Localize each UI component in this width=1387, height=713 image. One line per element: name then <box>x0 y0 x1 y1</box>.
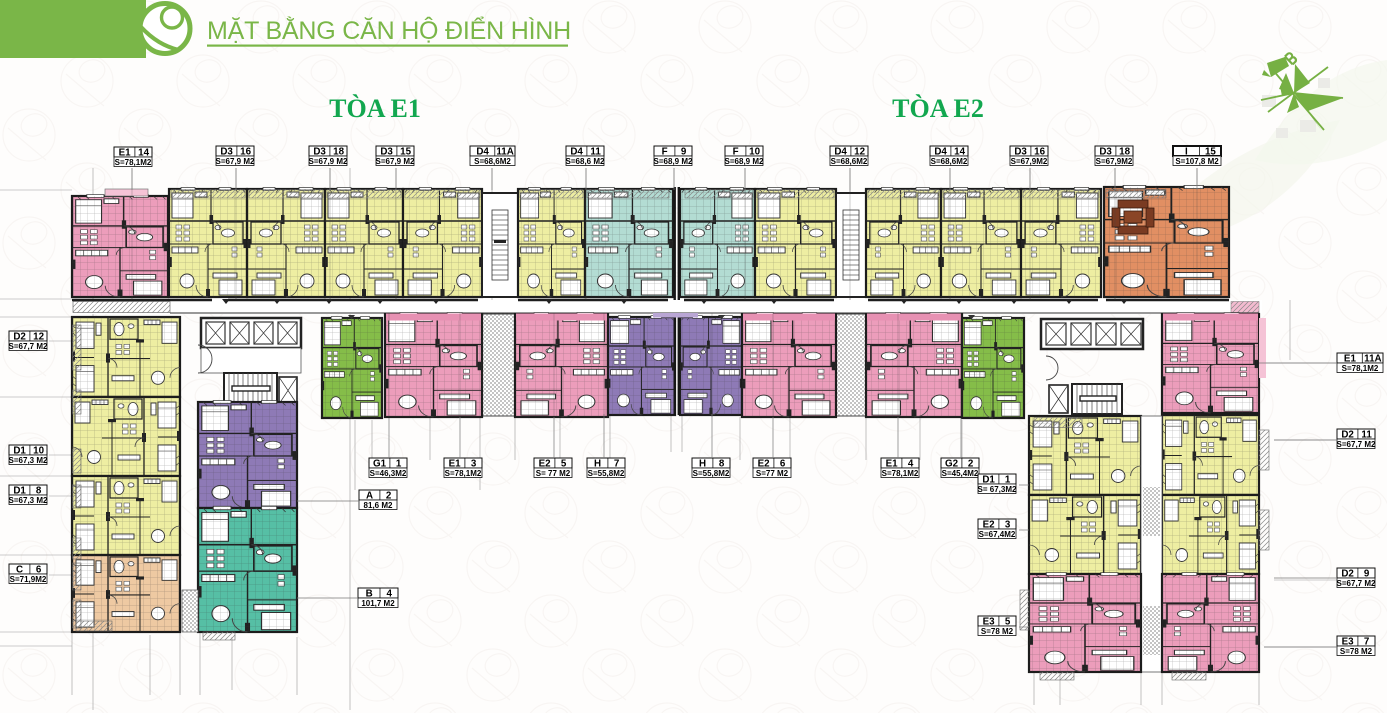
svg-text:S=46,3M2: S=46,3M2 <box>370 469 407 478</box>
svg-text:S=67,9M2: S=67,9M2 <box>1011 157 1048 166</box>
svg-text:S=67,7 M2: S=67,7 M2 <box>1337 440 1376 449</box>
svg-text:S=78,1M2: S=78,1M2 <box>1342 364 1379 373</box>
svg-text:MẶT BẰNG CĂN HỘ ĐIỂN HÌNH: MẶT BẰNG CĂN HỘ ĐIỂN HÌNH <box>207 16 571 45</box>
svg-text:S=68,6M2: S=68,6M2 <box>474 157 511 166</box>
svg-text:S=77 M2: S=77 M2 <box>756 469 789 478</box>
svg-text:S=55,8M2: S=55,8M2 <box>588 469 625 478</box>
svg-text:S=78,1M2: S=78,1M2 <box>115 158 152 167</box>
svg-text:S=67,3 M2: S=67,3 M2 <box>9 456 48 465</box>
svg-text:S=67,9M2: S=67,9M2 <box>1096 157 1133 166</box>
svg-text:S= 77 M2: S= 77 M2 <box>536 469 571 478</box>
svg-text:S= 67,3M2: S= 67,3M2 <box>978 485 1017 494</box>
svg-text:S=68,6M2: S=68,6M2 <box>831 157 868 166</box>
svg-text:S=78 M2: S=78 M2 <box>1340 647 1373 656</box>
svg-text:S=78,1M2: S=78,1M2 <box>882 469 919 478</box>
svg-text:S=68,6M2: S=68,6M2 <box>931 157 968 166</box>
svg-text:S=71,9M2: S=71,9M2 <box>10 575 47 584</box>
svg-text:S=67,9 M2: S=67,9 M2 <box>216 157 255 166</box>
svg-text:S=107,8 M2: S=107,8 M2 <box>1175 157 1219 166</box>
svg-text:S=67,3 M2: S=67,3 M2 <box>9 496 48 505</box>
svg-text:S=45,4M2: S=45,4M2 <box>942 469 979 478</box>
svg-text:TÒA E1: TÒA E1 <box>329 94 421 123</box>
svg-text:S=67,9 M2: S=67,9 M2 <box>376 157 415 166</box>
svg-text:S=78 M2: S=78 M2 <box>981 627 1014 636</box>
svg-text:101,7 M2: 101,7 M2 <box>361 599 395 608</box>
svg-text:S=67,9 M2: S=67,9 M2 <box>309 157 348 166</box>
svg-text:81,6 M2: 81,6 M2 <box>364 501 393 510</box>
svg-text:S=67,4M2: S=67,4M2 <box>979 530 1016 539</box>
svg-text:S=68,9 M2: S=68,9 M2 <box>725 157 764 166</box>
svg-text:S=67,7 M2: S=67,7 M2 <box>9 342 48 351</box>
svg-text:S=55,8M2: S=55,8M2 <box>693 469 730 478</box>
svg-text:TÒA E2: TÒA E2 <box>892 94 984 123</box>
svg-text:S=68,9 M2: S=68,9 M2 <box>654 157 693 166</box>
svg-text:S=68,6 M2: S=68,6 M2 <box>566 157 605 166</box>
svg-text:S=78,1M2: S=78,1M2 <box>445 469 482 478</box>
svg-text:S=67,7 M2: S=67,7 M2 <box>1337 579 1376 588</box>
